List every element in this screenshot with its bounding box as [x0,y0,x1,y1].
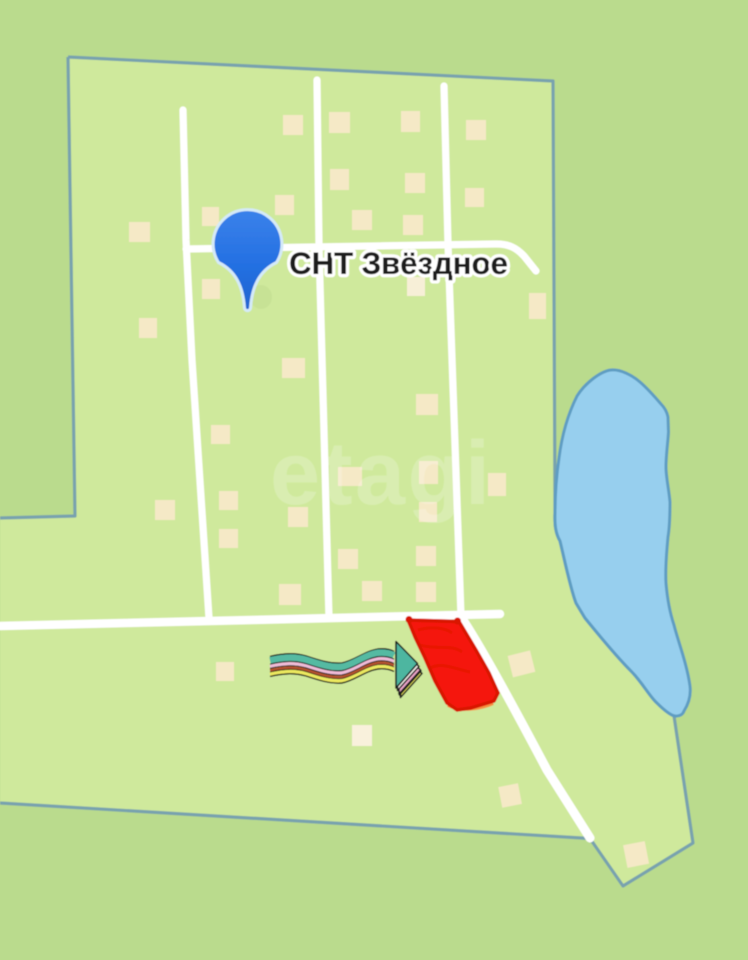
svg-text:etagi: etagi [270,424,490,524]
svg-text:СНТ Звёздное: СНТ Звёздное [289,245,508,281]
